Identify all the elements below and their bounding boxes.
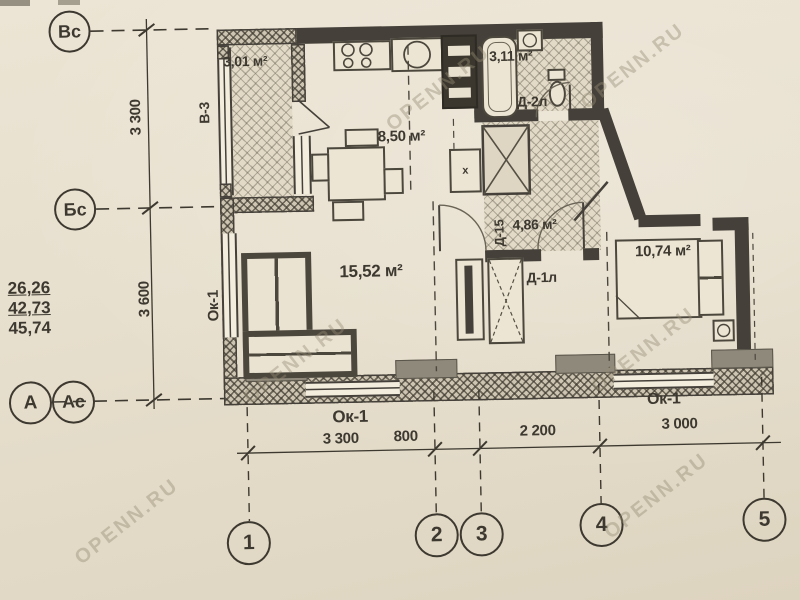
dim-h-800: 800 <box>381 426 431 445</box>
window-label-left: Ок-1 <box>199 278 228 333</box>
drawing-sheet: x <box>0 0 800 600</box>
kitchen-door-arc <box>439 204 486 251</box>
dining-chair-left <box>311 153 330 181</box>
axis-label-vs: Вс <box>58 21 81 42</box>
grid-circle-1: 1 <box>226 521 271 566</box>
vent-mark-label: x <box>462 165 468 177</box>
area-total-line3: 45,74 <box>8 318 51 339</box>
watermark: OPENN.RU <box>71 474 184 570</box>
grid-circle-2: 2 <box>414 513 459 558</box>
wardrobe <box>487 258 525 345</box>
pilaster-4 <box>711 349 773 369</box>
toilet-bowl-icon <box>549 81 567 107</box>
balcony-divider-window <box>293 136 312 194</box>
dining-table <box>327 146 386 201</box>
wall-balcony-divider <box>291 44 306 102</box>
axis-circle-as: Ас <box>52 380 96 424</box>
window-label-bottom-right: Ок-1 <box>647 390 681 409</box>
door-label-bedroom: Д-1л <box>526 269 556 286</box>
washing-machine-box: x <box>449 148 482 193</box>
area-total-line2: 42,73 <box>8 298 51 319</box>
grid-label-5: 5 <box>758 508 770 532</box>
dim-line-vertical <box>146 19 154 409</box>
room-label-balcony: 3,01 м² <box>223 53 267 70</box>
grid-label-2: 2 <box>431 523 443 547</box>
stove-icon <box>333 40 392 71</box>
dim-v-3300: 3 300 <box>123 87 148 147</box>
room-label-bedroom: 10,74 м² <box>635 242 691 260</box>
grid-label-1: 1 <box>243 531 255 555</box>
watermark: OPENN.RU <box>600 449 713 545</box>
dining-chair-top <box>345 128 379 147</box>
axis-line-bs <box>96 207 216 209</box>
area-totals: 26,26 42,73 45,74 <box>7 278 51 339</box>
wall-top-balcony <box>217 28 297 46</box>
bed-pillows <box>697 240 725 317</box>
nightstand <box>712 319 734 341</box>
grid-line-5 <box>762 377 764 498</box>
grid-line-1 <box>247 407 249 521</box>
glazing-block-bottom <box>220 183 232 197</box>
door-label-hall: Д-15 <box>483 211 514 256</box>
photo-edge-mark <box>58 0 80 5</box>
axis-circle-bs: Бс <box>54 188 97 231</box>
window-bottom-left-ok1 <box>306 380 400 398</box>
grid-line-3 <box>479 390 481 512</box>
zone-line-bedroom <box>607 232 610 368</box>
grid-circle-3: 3 <box>459 512 504 557</box>
room-label-bathroom: 3,11 м² <box>489 47 533 64</box>
grid-line-4 <box>599 384 601 503</box>
balcony-unit-label: В-3 <box>191 90 218 137</box>
room-label-living: 15,52 м² <box>339 261 402 282</box>
toilet-tank-icon <box>547 69 565 81</box>
dining-chair-right <box>383 168 404 194</box>
axis-circle-vs: Вс <box>48 10 91 53</box>
axis-label-a: А <box>23 392 37 414</box>
dim-h-3000: 3 000 <box>644 414 714 433</box>
photo-edge-mark <box>0 0 30 6</box>
axis-circle-a: А <box>9 381 53 425</box>
dim-v-3600: 3 600 <box>131 269 156 329</box>
axis-line-vs <box>91 29 213 31</box>
zone-line-living <box>433 201 436 371</box>
grid-label-3: 3 <box>476 522 488 546</box>
dim-h-2200: 2 200 <box>502 421 572 440</box>
grid-line-2 <box>434 391 436 513</box>
window-label-bottom-left: Ок-1 <box>332 407 368 428</box>
wall-hall-bottom-b <box>583 248 599 260</box>
axis-label-as: Ас <box>62 391 85 412</box>
dim-h-3300: 3 300 <box>306 429 376 448</box>
dining-chair-bottom <box>332 201 364 222</box>
axis-label-bs: Бс <box>63 199 86 220</box>
wall-bedroom-top-a <box>638 214 700 227</box>
hall-cabinet <box>455 258 485 341</box>
grid-circle-5: 5 <box>742 497 787 542</box>
balcony-glazing <box>217 47 234 195</box>
pilaster-2 <box>395 359 457 379</box>
door-label-bath: Д-2л <box>517 93 547 110</box>
floor-plan-photo: x <box>0 0 800 600</box>
kitchen-door-leaf <box>439 205 440 251</box>
sink-icon <box>391 37 444 72</box>
wall-diagonal <box>596 107 646 221</box>
room-label-hallway: 4,86 м² <box>512 216 556 233</box>
area-total-line1: 26,26 <box>7 278 50 299</box>
